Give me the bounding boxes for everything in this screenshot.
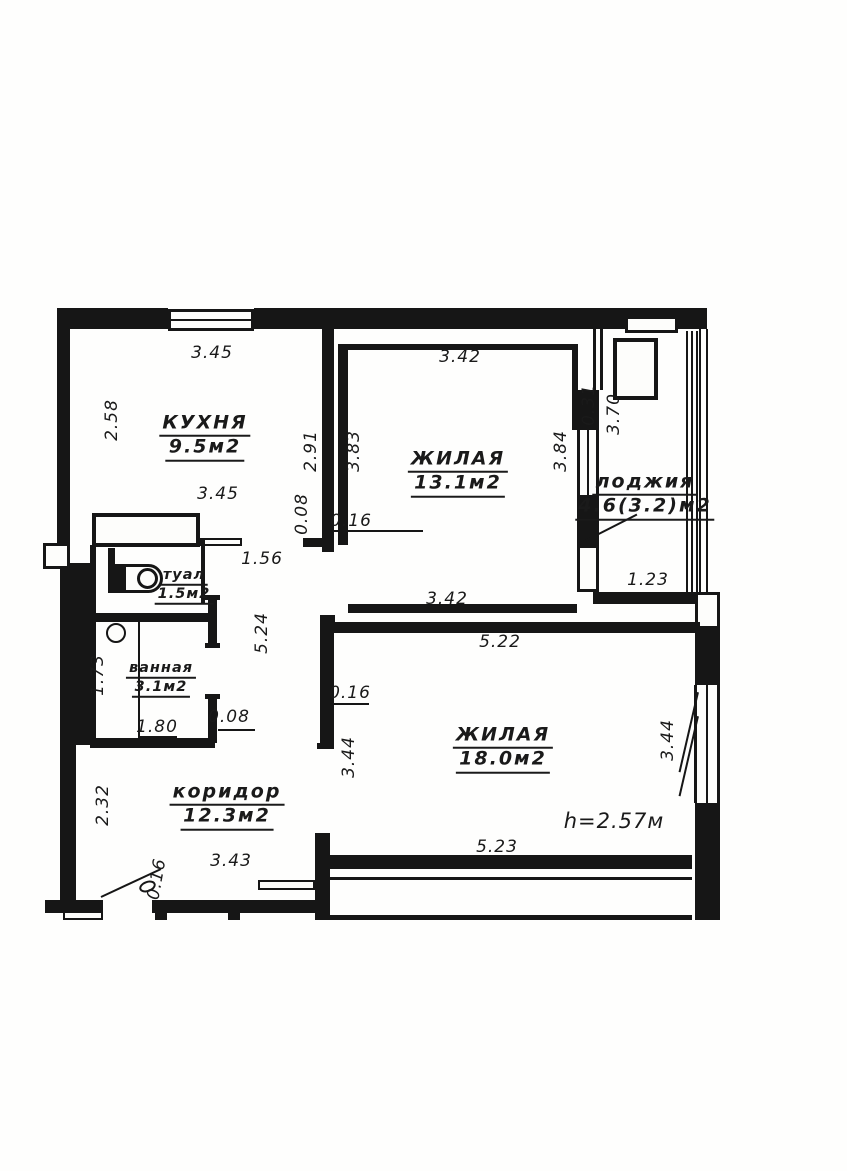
ceiling-height-note: h=2.57м <box>564 809 665 833</box>
wall-segment <box>60 745 76 905</box>
kitchen-lower-wall-block <box>92 513 200 547</box>
room-label-living-room-2: ЖИЛАЯ18.0м2 <box>453 725 553 774</box>
wall-stub <box>155 913 167 920</box>
wall-foot <box>303 538 323 547</box>
dimension-label: 2.91 <box>301 430 321 472</box>
dimension-label: 2.32 <box>93 784 113 826</box>
wall-segment <box>90 613 208 622</box>
outer-wall-outline <box>699 329 708 592</box>
dimension-label: 3.43 <box>210 851 252 871</box>
dimension-label: 2.58 <box>102 399 122 441</box>
wall-segment <box>320 615 334 748</box>
glazing-mullion <box>691 331 693 592</box>
wall-segment <box>254 308 603 329</box>
dimension-label: 0.16 <box>144 857 171 902</box>
dimension-label: 3.42 <box>426 589 468 609</box>
dim-line <box>218 729 255 731</box>
room-label-loggia: лоджия4.6(3.2)м2 <box>575 472 714 521</box>
dimension-label: 3.44 <box>658 719 678 761</box>
wall-segment <box>152 900 318 913</box>
dimension-label: 3.44 <box>339 736 359 778</box>
hall-outline-bottom <box>327 915 692 920</box>
dimension-label: 1.56 <box>241 549 283 569</box>
dimension-label: 1.23 <box>627 570 669 590</box>
dimension-label: 1.73 <box>88 654 108 696</box>
room-area: 9.5м2 <box>166 437 244 461</box>
dimension-label: 5.24 <box>252 612 272 654</box>
room-name: лоджия <box>593 472 698 496</box>
floor-plan-canvas: КУХНЯ9.5м2ЖИЛАЯ13.1м2лоджия4.6(3.2)м2туа… <box>0 0 847 1171</box>
dimension-label: 5.23 <box>476 837 518 857</box>
dimension-label: 5.22 <box>479 632 521 652</box>
room-area: 12.3м2 <box>180 806 274 830</box>
room-label-corridor: коридор12.3м2 <box>170 782 285 831</box>
hall-outline-top <box>327 877 692 880</box>
dimension-label: 0.31 <box>579 384 599 426</box>
room-name: коридор <box>170 782 285 806</box>
door-leaf <box>258 880 315 890</box>
wall-segment <box>325 855 692 869</box>
room-label-living-room-1: ЖИЛАЯ13.1м2 <box>408 449 508 498</box>
dim-line <box>333 703 369 705</box>
dimension-label: 0.08 <box>208 707 250 727</box>
sink-icon <box>106 623 126 643</box>
wall-serif <box>205 694 220 699</box>
wall-pilaster <box>43 543 70 569</box>
window-mullion <box>706 685 708 803</box>
dimension-label: 1.80 <box>136 717 178 737</box>
room-area: 3.1м2 <box>132 679 191 698</box>
dimension-label: 0.16 <box>329 683 371 703</box>
room-label-kitchen: КУХНЯ9.5м2 <box>159 413 250 462</box>
wall-segment <box>57 308 168 329</box>
wall-corner-block <box>577 545 599 592</box>
room-area: 13.1м2 <box>411 473 505 497</box>
wall-end-cap <box>317 743 334 749</box>
room-area: 18.0м2 <box>456 749 550 773</box>
kitchen-window-mullion <box>170 319 252 321</box>
room-name: ванная <box>126 660 196 679</box>
wall-serif <box>205 643 220 648</box>
dimension-label: 0.16 <box>330 511 372 531</box>
room-area: 1.5м2 <box>155 586 214 605</box>
dimension-label: 3.45 <box>197 484 239 504</box>
toilet-tank <box>109 564 123 593</box>
room-label-toilet: туал1.5м2 <box>155 567 214 605</box>
room-name: ЖИЛАЯ <box>453 725 553 749</box>
room-label-bathroom: ванная3.1м2 <box>126 660 196 698</box>
loggia-wall-outline <box>593 329 603 390</box>
dimension-label: 3.45 <box>191 343 233 363</box>
wall-segment <box>57 308 70 545</box>
loggia-top-notch <box>625 316 678 333</box>
thin-partition <box>200 538 242 546</box>
dimension-label: 3.70 <box>604 393 624 435</box>
room-name: туал <box>160 567 208 586</box>
dimension-label: 3.84 <box>551 430 571 472</box>
entry-threshold <box>63 911 103 920</box>
wall-segment <box>90 545 96 565</box>
loggia-cabinet <box>613 338 658 400</box>
room-area: 4.6(3.2)м2 <box>575 496 714 520</box>
room-name: ЖИЛАЯ <box>408 449 508 473</box>
dimension-label: 3.83 <box>344 430 364 472</box>
wall-segment <box>695 803 720 920</box>
wall-segment <box>90 738 215 748</box>
wall-segment <box>695 627 720 685</box>
dimension-label: 0.08 <box>292 493 312 535</box>
wall-stub <box>228 913 240 920</box>
dimension-label: 3.42 <box>439 347 481 367</box>
room-name: КУХНЯ <box>159 413 250 437</box>
